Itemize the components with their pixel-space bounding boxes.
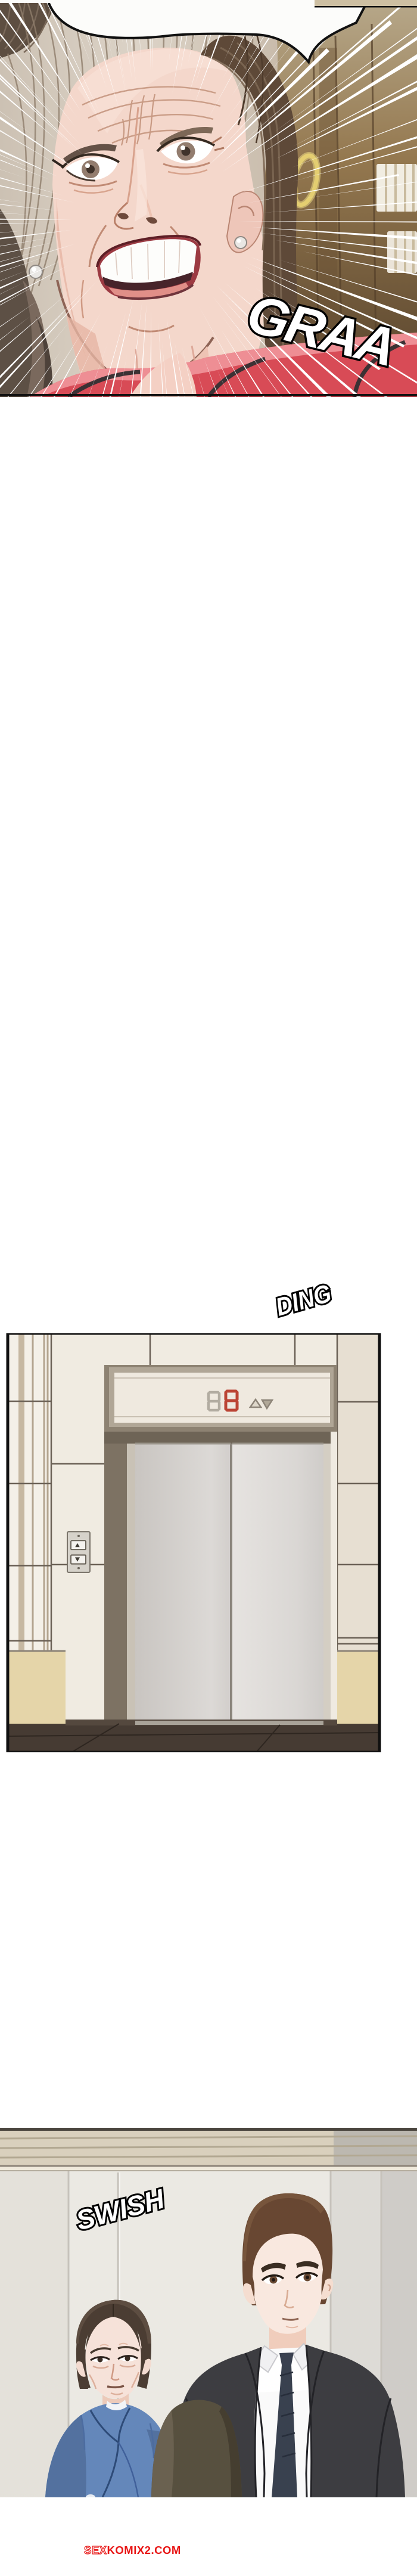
svg-text:DING: DING (273, 1280, 335, 1321)
